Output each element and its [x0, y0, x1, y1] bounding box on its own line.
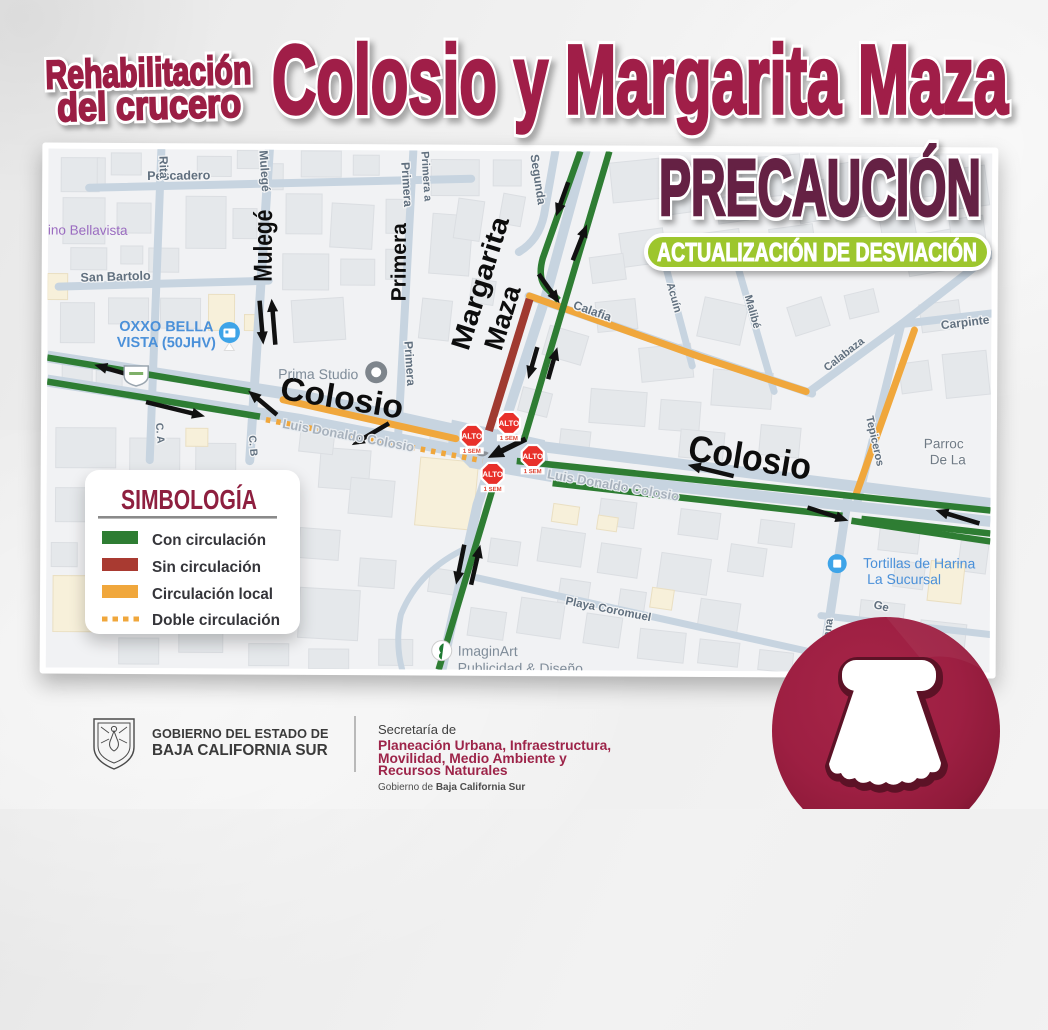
svg-text:C. A: C. A: [153, 422, 167, 444]
svg-text:Primera: Primera: [401, 341, 418, 387]
svg-text:Primera: Primera: [398, 162, 415, 208]
svg-text:Colosio y Margarita Maza: Colosio y Margarita Maza: [272, 25, 1009, 134]
svg-text:De La: De La: [930, 452, 967, 467]
svg-text:PRECAUCIÓN: PRECAUCIÓN: [659, 143, 981, 232]
svg-text:ino Bellavista: ino Bellavista: [48, 223, 128, 238]
svg-text:Circulación local: Circulación local: [152, 586, 273, 603]
svg-text:Sin circulación: Sin circulación: [152, 559, 261, 576]
svg-text:San Bartolo: San Bartolo: [80, 269, 151, 285]
svg-text:ImaginArt: ImaginArt: [458, 643, 518, 659]
svg-text:Publicidad & Diseño: Publicidad & Diseño: [458, 660, 584, 673]
svg-text:ACTUALIZACIÓN DE DESVIACIÓN: ACTUALIZACIÓN DE DESVIACIÓN: [657, 237, 977, 267]
svg-text:Pescadero: Pescadero: [147, 168, 211, 183]
svg-text:Rita: Rita: [156, 156, 171, 179]
svg-text:del crucero: del crucero: [57, 82, 242, 130]
svg-text:Mulegé: Mulegé: [248, 210, 278, 282]
svg-text:Mulegé: Mulegé: [256, 150, 273, 192]
svg-text:SIMBOLOGÍA: SIMBOLOGÍA: [121, 484, 257, 515]
svg-text:Primera: Primera: [388, 223, 411, 302]
svg-text:Prima Studio: Prima Studio: [278, 366, 358, 382]
svg-text:Tortillas de Harina: Tortillas de Harina: [863, 555, 975, 572]
svg-text:Parroc: Parroc: [924, 436, 964, 451]
svg-text:OXXO BELLA: OXXO BELLA: [119, 319, 214, 335]
svg-text:VISTA (50JHV): VISTA (50JHV): [117, 335, 216, 352]
svg-text:C. B: C. B: [246, 435, 260, 457]
svg-text:Con circulación: Con circulación: [152, 532, 266, 549]
svg-text:Doble circulación: Doble circulación: [152, 612, 280, 629]
svg-text:La Sucursal: La Sucursal: [867, 571, 941, 587]
